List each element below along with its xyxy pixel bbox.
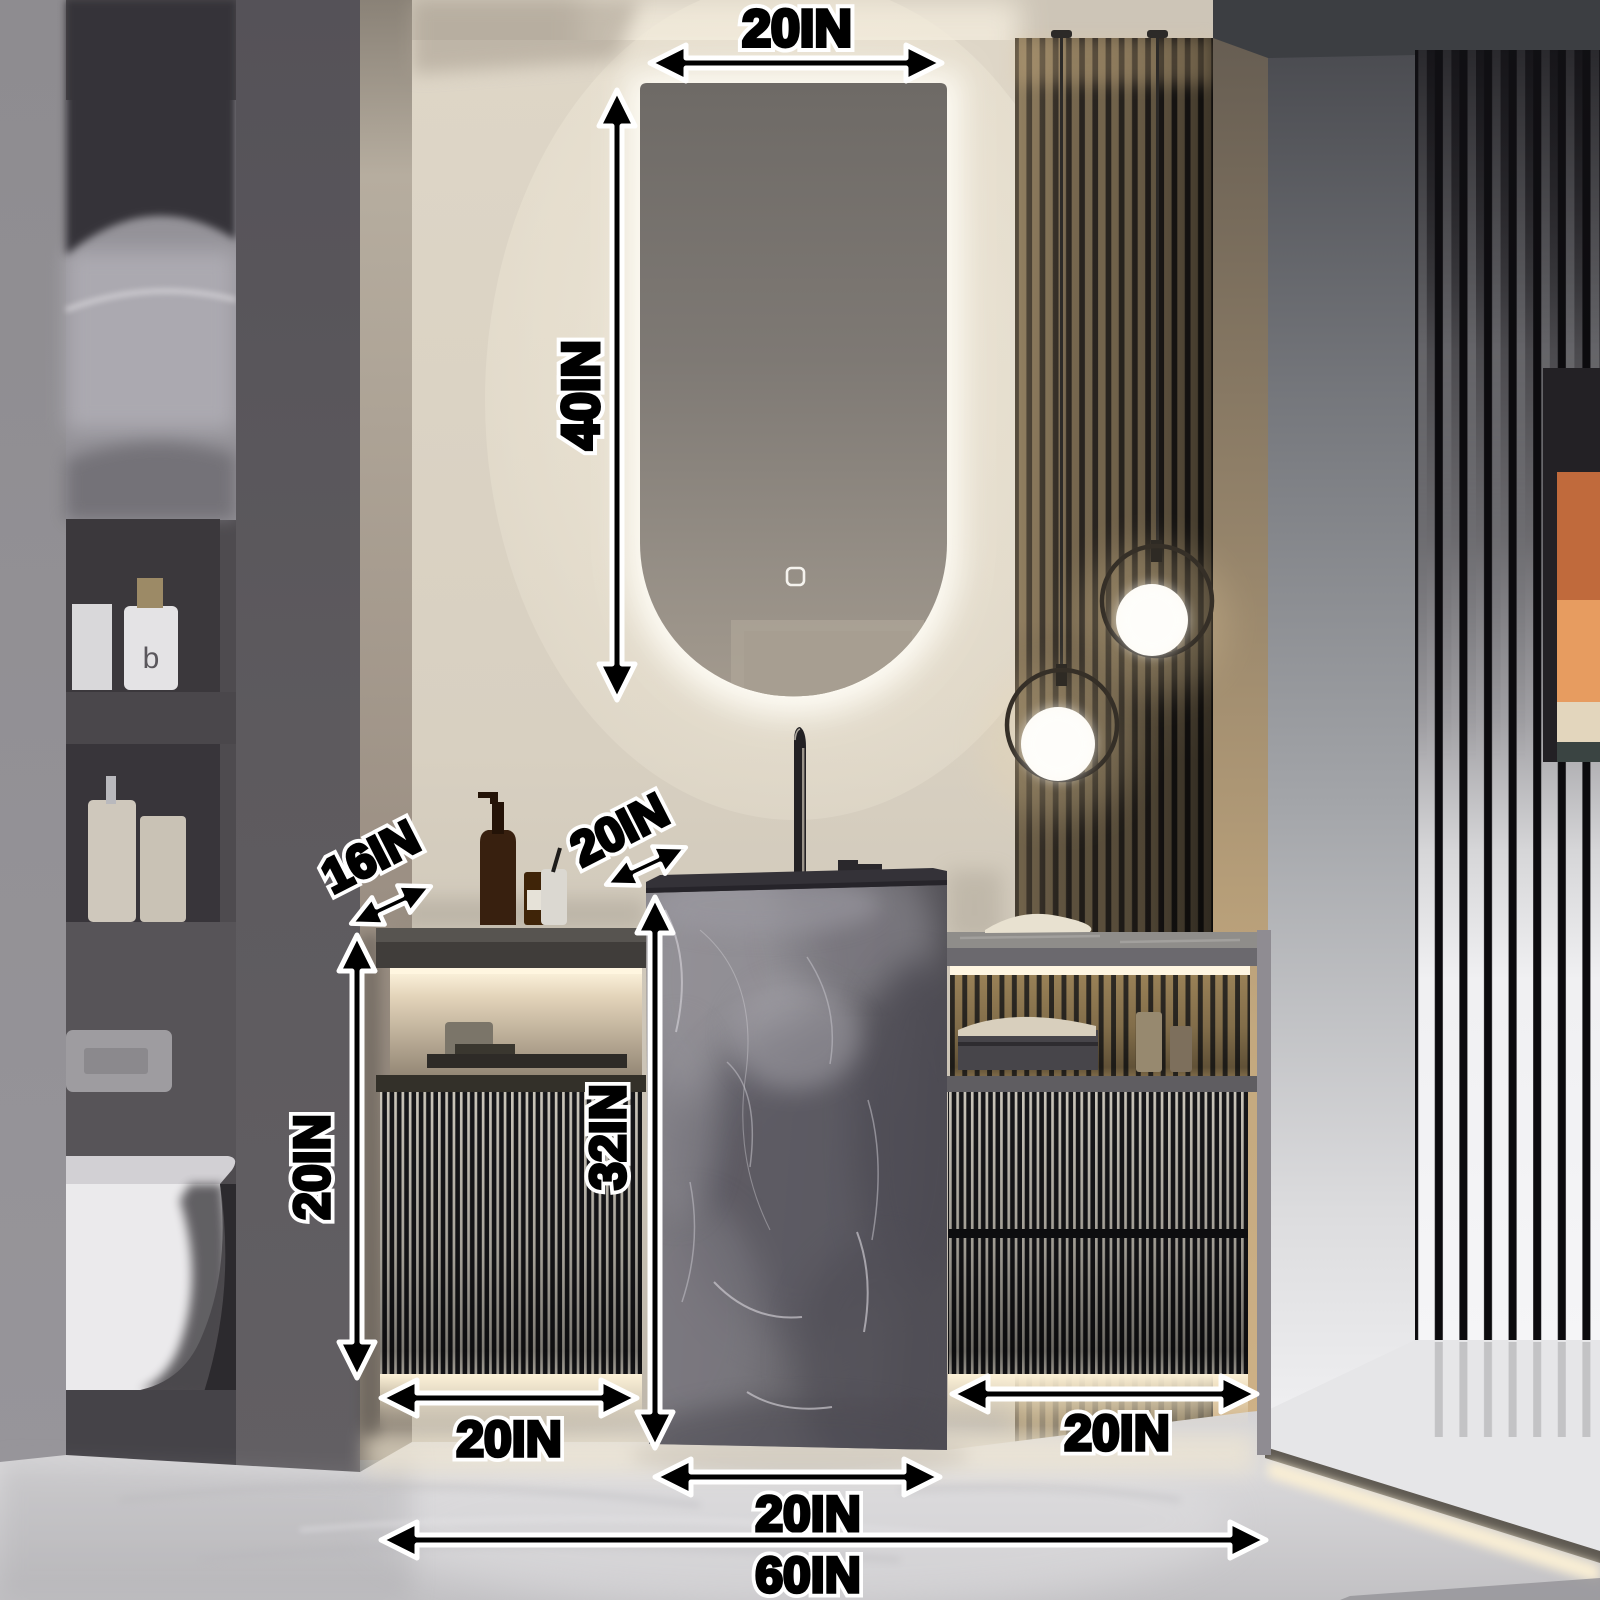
svg-text:b: b bbox=[143, 642, 160, 675]
svg-text:40IN: 40IN bbox=[553, 340, 611, 450]
svg-text:20IN: 20IN bbox=[1064, 1405, 1170, 1461]
svg-text:32IN: 32IN bbox=[580, 1084, 636, 1190]
svg-text:20IN: 20IN bbox=[284, 1114, 340, 1220]
svg-text:20IN: 20IN bbox=[742, 0, 852, 58]
svg-text:20IN: 20IN bbox=[456, 1411, 562, 1467]
svg-text:60IN: 60IN bbox=[755, 1547, 861, 1600]
